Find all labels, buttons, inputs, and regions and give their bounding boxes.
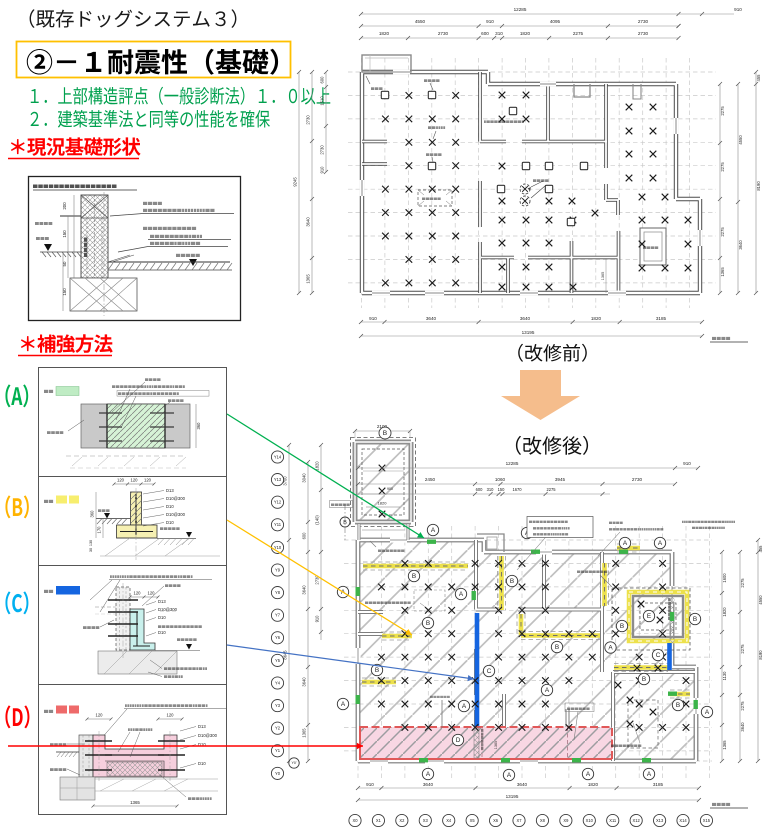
svg-text:30: 30 (89, 548, 93, 552)
svg-text:9245: 9245 (293, 177, 298, 187)
svg-text:A: A (608, 645, 613, 652)
svg-text:1365: 1365 (306, 274, 311, 284)
svg-text:D10: D10 (166, 504, 174, 509)
svg-text:1820: 1820 (378, 501, 388, 506)
svg-text:910: 910 (369, 316, 377, 321)
svg-text:Y2: Y2 (275, 726, 281, 731)
svg-text:D10: D10 (166, 520, 174, 525)
svg-text:1820: 1820 (722, 607, 727, 617)
svg-text:X10: X10 (586, 818, 594, 823)
svg-text:X6: X6 (493, 818, 499, 823)
svg-text:2275: 2275 (720, 106, 725, 116)
svg-text:120: 120 (134, 591, 142, 596)
svg-text:120: 120 (167, 713, 175, 718)
svg-text:Y11: Y11 (274, 522, 282, 527)
svg-text:120: 120 (96, 713, 104, 718)
svg-text:600: 600 (302, 532, 307, 540)
svg-text:X3: X3 (423, 818, 429, 823)
svg-text:Y7: Y7 (275, 613, 281, 618)
svg-text:3640: 3640 (738, 240, 743, 250)
svg-text:(140): (140) (315, 515, 320, 525)
svg-text:910: 910 (320, 166, 325, 174)
svg-text:A: A (341, 701, 346, 708)
svg-text:B: B (375, 667, 379, 674)
svg-text:360: 360 (90, 510, 95, 518)
svg-text:600: 600 (320, 76, 325, 84)
svg-text:360: 360 (196, 422, 201, 430)
svg-text:B: B (620, 623, 624, 630)
svg-text:1820: 1820 (520, 31, 531, 36)
svg-text:A: A (705, 709, 710, 716)
svg-text:C: C (656, 652, 661, 659)
svg-text:3185: 3185 (653, 782, 664, 787)
svg-text:X2: X2 (399, 818, 405, 823)
svg-text:X11: X11 (609, 818, 617, 823)
svg-text:900: 900 (387, 487, 393, 491)
svg-text:170: 170 (97, 526, 102, 534)
svg-text:D13: D13 (166, 488, 174, 493)
svg-text:D13: D13 (158, 599, 166, 604)
svg-text:C: C (487, 668, 492, 675)
svg-text:2730: 2730 (306, 115, 311, 125)
svg-text:200: 200 (62, 202, 67, 210)
svg-text:2275: 2275 (720, 227, 725, 237)
svg-text:1820: 1820 (591, 316, 602, 321)
svg-text:3945: 3945 (555, 477, 566, 482)
svg-text:D: D (456, 737, 461, 744)
svg-text:1365: 1365 (601, 272, 605, 280)
svg-text:A: A (545, 687, 550, 694)
svg-text:4550: 4550 (758, 595, 763, 605)
svg-text:8190: 8190 (756, 181, 761, 191)
svg-text:Y12: Y12 (274, 500, 282, 505)
svg-text:D13: D13 (198, 724, 206, 729)
svg-text:3640: 3640 (426, 316, 437, 321)
svg-text:1820: 1820 (379, 31, 390, 36)
svg-text:X0: X0 (352, 818, 358, 823)
svg-text:120: 120 (131, 478, 139, 483)
svg-text:1365: 1365 (302, 728, 307, 738)
svg-text:120: 120 (144, 478, 152, 483)
svg-text:3185: 3185 (656, 316, 667, 321)
svg-text:2730: 2730 (638, 19, 649, 24)
svg-text:455: 455 (756, 74, 761, 82)
svg-text:X12: X12 (633, 818, 641, 823)
svg-text:2730: 2730 (638, 31, 649, 36)
svg-text:Y5: Y5 (275, 658, 281, 663)
svg-text:X4: X4 (446, 818, 452, 823)
svg-text:B: B (693, 616, 697, 623)
svg-text:E: E (647, 613, 651, 620)
svg-text:12285: 12285 (514, 7, 527, 12)
svg-text:310: 310 (487, 487, 495, 492)
svg-text:1130: 1130 (722, 671, 727, 681)
svg-text:A: A (507, 772, 512, 779)
svg-text:1365: 1365 (130, 800, 140, 805)
svg-text:B: B (426, 620, 430, 627)
svg-text:D10: D10 (158, 630, 166, 635)
svg-text:910: 910 (366, 782, 374, 787)
svg-text:2730: 2730 (632, 477, 643, 482)
svg-text:2730: 2730 (320, 145, 325, 155)
svg-text:D10: D10 (158, 615, 166, 620)
svg-text:3640: 3640 (423, 782, 434, 787)
svg-text:B: B (555, 644, 559, 651)
svg-text:3640: 3640 (302, 585, 307, 595)
svg-text:D10@300: D10@300 (166, 496, 186, 501)
svg-text:13195: 13195 (506, 794, 519, 799)
svg-text:A: A (459, 591, 464, 598)
svg-text:X9: X9 (563, 818, 569, 823)
svg-text:X14: X14 (679, 818, 687, 823)
svg-text:B: B (412, 573, 416, 580)
svg-text:Y1: Y1 (275, 748, 281, 753)
svg-text:D10: D10 (198, 761, 206, 766)
svg-text:1600: 1600 (722, 573, 727, 583)
svg-text:120: 120 (148, 591, 156, 596)
svg-text:3640: 3640 (520, 316, 531, 321)
svg-text:120: 120 (117, 478, 125, 483)
svg-text:4095: 4095 (550, 19, 561, 24)
svg-text:2450: 2450 (425, 477, 436, 482)
svg-text:130: 130 (89, 540, 93, 546)
svg-text:D10@300: D10@300 (166, 512, 186, 517)
svg-text:A: A (431, 527, 436, 534)
svg-text:B: B (642, 676, 646, 683)
svg-text:455: 455 (758, 545, 763, 553)
svg-text:B: B (676, 702, 680, 709)
svg-text:X15: X15 (703, 818, 711, 823)
svg-text:Y14: Y14 (274, 454, 282, 459)
svg-text:12285: 12285 (506, 461, 519, 466)
svg-text:3040: 3040 (302, 473, 307, 483)
svg-text:1365: 1365 (494, 741, 498, 749)
svg-text:A: A (462, 703, 467, 710)
svg-text:X1: X1 (376, 818, 382, 823)
svg-text:150: 150 (498, 487, 506, 492)
svg-text:600: 600 (481, 31, 489, 36)
svg-text:X8: X8 (540, 818, 546, 823)
svg-text:3640: 3640 (302, 677, 307, 687)
svg-text:310: 310 (495, 31, 503, 36)
svg-text:D10@300: D10@300 (198, 733, 218, 738)
svg-text:2275: 2275 (573, 31, 584, 36)
svg-text:B: B (510, 578, 514, 585)
svg-text:3640: 3640 (740, 722, 745, 732)
svg-text:1510: 1510 (320, 96, 325, 106)
svg-text:A: A (658, 540, 663, 547)
svg-text:910: 910 (315, 615, 320, 623)
svg-text:2275: 2275 (720, 162, 725, 172)
svg-text:910: 910 (486, 19, 494, 24)
svg-text:A: A (426, 771, 431, 778)
svg-text:910: 910 (734, 7, 742, 12)
svg-text:1365: 1365 (722, 740, 727, 750)
svg-text:Y10: Y10 (274, 545, 282, 550)
svg-text:600: 600 (476, 487, 484, 492)
svg-text:3640: 3640 (517, 782, 528, 787)
svg-text:1670: 1670 (512, 487, 522, 492)
svg-text:2275: 2275 (740, 578, 745, 588)
svg-text:A: A (623, 540, 628, 547)
svg-text:Y0: Y0 (275, 771, 281, 776)
svg-text:A: A (647, 771, 652, 778)
svg-text:2275: 2275 (740, 644, 745, 654)
svg-text:A: A (586, 771, 591, 778)
svg-text:8190: 8190 (758, 650, 763, 660)
svg-text:Y6: Y6 (275, 635, 281, 640)
svg-text:1060: 1060 (495, 477, 506, 482)
svg-text:2275: 2275 (740, 701, 745, 711)
svg-text:Y9: Y9 (275, 567, 281, 572)
svg-text:13195: 13195 (522, 330, 535, 335)
svg-text:1365: 1365 (720, 267, 725, 277)
svg-text:Y0': Y0' (291, 761, 296, 765)
svg-text:Y13: Y13 (274, 477, 282, 482)
svg-text:3640: 3640 (306, 217, 311, 227)
svg-text:X13: X13 (656, 818, 664, 823)
svg-text:4550: 4550 (738, 135, 743, 145)
svg-text:2730: 2730 (438, 31, 449, 36)
svg-text:X5: X5 (470, 818, 476, 823)
svg-text:X7: X7 (517, 818, 523, 823)
svg-text:B: B (383, 430, 388, 437)
svg-text:150: 150 (62, 230, 67, 238)
svg-text:50: 50 (62, 261, 67, 266)
svg-text:4550: 4550 (415, 19, 426, 24)
svg-text:Y3: Y3 (275, 703, 281, 708)
svg-text:150: 150 (62, 288, 67, 296)
svg-text:1820: 1820 (588, 782, 599, 787)
svg-text:910: 910 (683, 461, 691, 466)
svg-text:2275: 2275 (546, 487, 556, 492)
svg-text:Y8: Y8 (275, 590, 281, 595)
svg-text:Y4: Y4 (275, 680, 281, 685)
